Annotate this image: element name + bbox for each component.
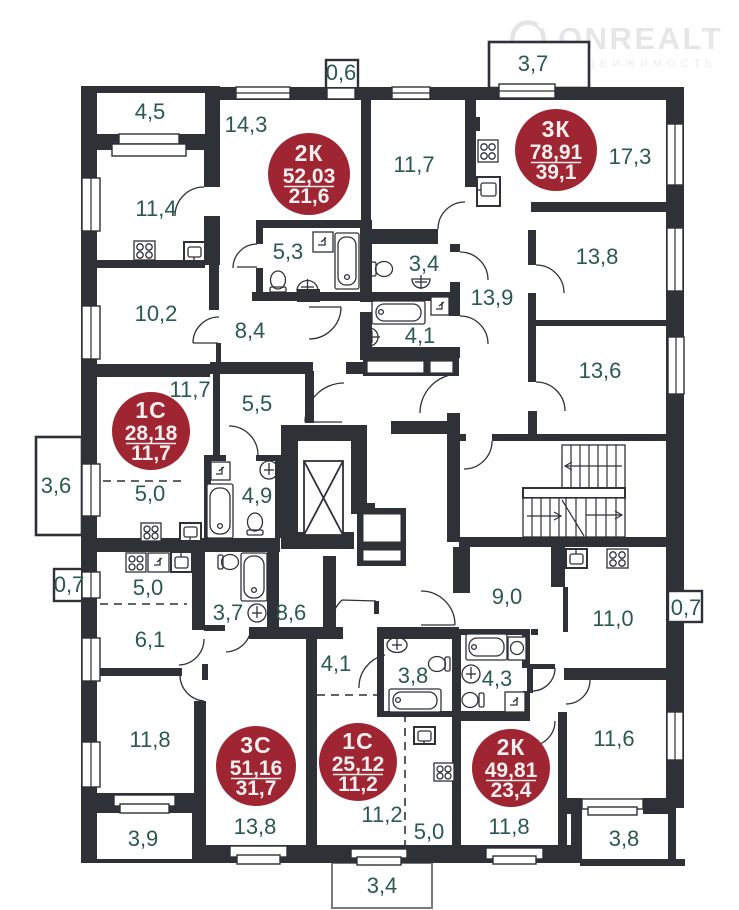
svg-text:11,4: 11,4: [135, 196, 176, 221]
svg-text:11,8: 11,8: [488, 814, 529, 839]
svg-text:3,8: 3,8: [398, 663, 429, 688]
svg-text:5,3: 5,3: [273, 239, 304, 264]
svg-text:3К: 3К: [542, 116, 571, 142]
svg-text:11,0: 11,0: [592, 606, 633, 631]
svg-text:3,7: 3,7: [213, 600, 244, 625]
svg-text:0,6: 0,6: [326, 60, 357, 85]
svg-text:13,9: 13,9: [471, 285, 514, 310]
svg-text:3,8: 3,8: [609, 826, 640, 851]
svg-text:13,6: 13,6: [579, 358, 622, 383]
svg-text:4,1: 4,1: [321, 651, 352, 676]
svg-text:4,5: 4,5: [135, 99, 166, 124]
svg-text:11,7: 11,7: [393, 152, 434, 177]
svg-text:11,7: 11,7: [169, 377, 210, 402]
svg-text:11,2: 11,2: [338, 773, 378, 796]
svg-text:11,2: 11,2: [361, 802, 402, 827]
svg-text:2К: 2К: [295, 140, 324, 166]
svg-text:5,0: 5,0: [135, 481, 166, 506]
svg-text:1С: 1С: [342, 728, 373, 754]
svg-text:3,7: 3,7: [518, 51, 549, 76]
svg-text:13,8: 13,8: [234, 814, 277, 839]
svg-text:3,4: 3,4: [409, 251, 440, 276]
svg-text:21,6: 21,6: [289, 185, 330, 208]
svg-text:11,8: 11,8: [129, 727, 170, 752]
svg-text:8,4: 8,4: [235, 318, 266, 343]
svg-text:31,7: 31,7: [236, 777, 277, 800]
svg-text:0,7: 0,7: [671, 595, 702, 620]
svg-text:17,3: 17,3: [609, 144, 652, 169]
svg-text:9,0: 9,0: [492, 584, 523, 609]
svg-text:2К: 2К: [497, 734, 526, 760]
svg-text:3,6: 3,6: [41, 473, 72, 498]
svg-text:13,8: 13,8: [576, 244, 619, 269]
svg-text:5,0: 5,0: [414, 819, 445, 844]
svg-text:3,9: 3,9: [128, 826, 159, 851]
svg-text:4,1: 4,1: [405, 323, 436, 348]
svg-text:0,7: 0,7: [54, 572, 85, 597]
svg-text:4,3: 4,3: [482, 666, 513, 691]
svg-text:3С: 3С: [240, 732, 271, 758]
svg-text:8,6: 8,6: [276, 600, 307, 625]
svg-text:11,6: 11,6: [593, 726, 634, 751]
svg-text:5,0: 5,0: [133, 575, 164, 600]
svg-text:23,4: 23,4: [491, 779, 532, 802]
svg-text:5,5: 5,5: [242, 391, 273, 416]
svg-text:39,1: 39,1: [536, 161, 577, 184]
svg-text:10,2: 10,2: [135, 301, 178, 326]
svg-text:11,7: 11,7: [131, 442, 171, 465]
svg-text:3,4: 3,4: [367, 873, 398, 898]
svg-text:1С: 1С: [135, 397, 166, 423]
svg-text:6,1: 6,1: [135, 627, 166, 652]
svg-text:4,9: 4,9: [242, 483, 273, 508]
svg-text:14,3: 14,3: [225, 112, 268, 137]
